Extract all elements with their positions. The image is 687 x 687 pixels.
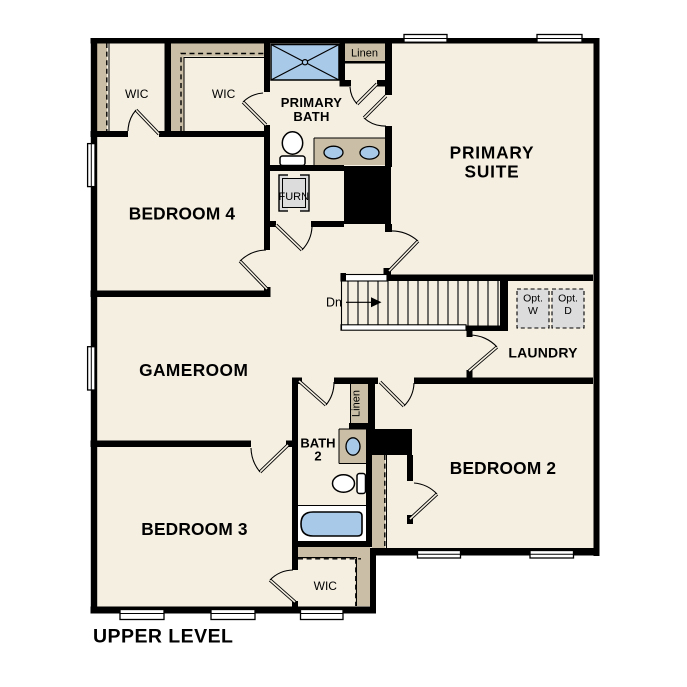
svg-text:Dn: Dn	[326, 296, 342, 310]
svg-text:WIC: WIC	[212, 87, 236, 101]
svg-text:PRIMARY: PRIMARY	[450, 143, 535, 163]
svg-text:D: D	[564, 305, 572, 317]
svg-text:WIC: WIC	[125, 87, 149, 101]
svg-text:FURN: FURN	[279, 191, 310, 203]
svg-text:SUITE: SUITE	[465, 162, 520, 182]
svg-text:BEDROOM 4: BEDROOM 4	[129, 204, 236, 224]
svg-text:UPPER LEVEL: UPPER LEVEL	[93, 626, 233, 648]
svg-text:BEDROOM 2: BEDROOM 2	[450, 458, 556, 478]
svg-text:BATH: BATH	[293, 109, 329, 124]
svg-text:GAMEROOM: GAMEROOM	[139, 360, 248, 380]
svg-text:WIC: WIC	[314, 579, 338, 593]
svg-text:BEDROOM 3: BEDROOM 3	[141, 519, 247, 539]
svg-text:2: 2	[314, 449, 321, 464]
svg-text:Opt.: Opt.	[523, 293, 543, 305]
svg-text:PRIMARY: PRIMARY	[281, 95, 343, 110]
svg-text:W: W	[528, 305, 538, 317]
svg-text:Linen: Linen	[351, 390, 363, 417]
svg-text:Opt.: Opt.	[558, 293, 578, 305]
svg-text:LAUNDRY: LAUNDRY	[508, 345, 578, 361]
svg-text:Linen: Linen	[351, 48, 378, 60]
